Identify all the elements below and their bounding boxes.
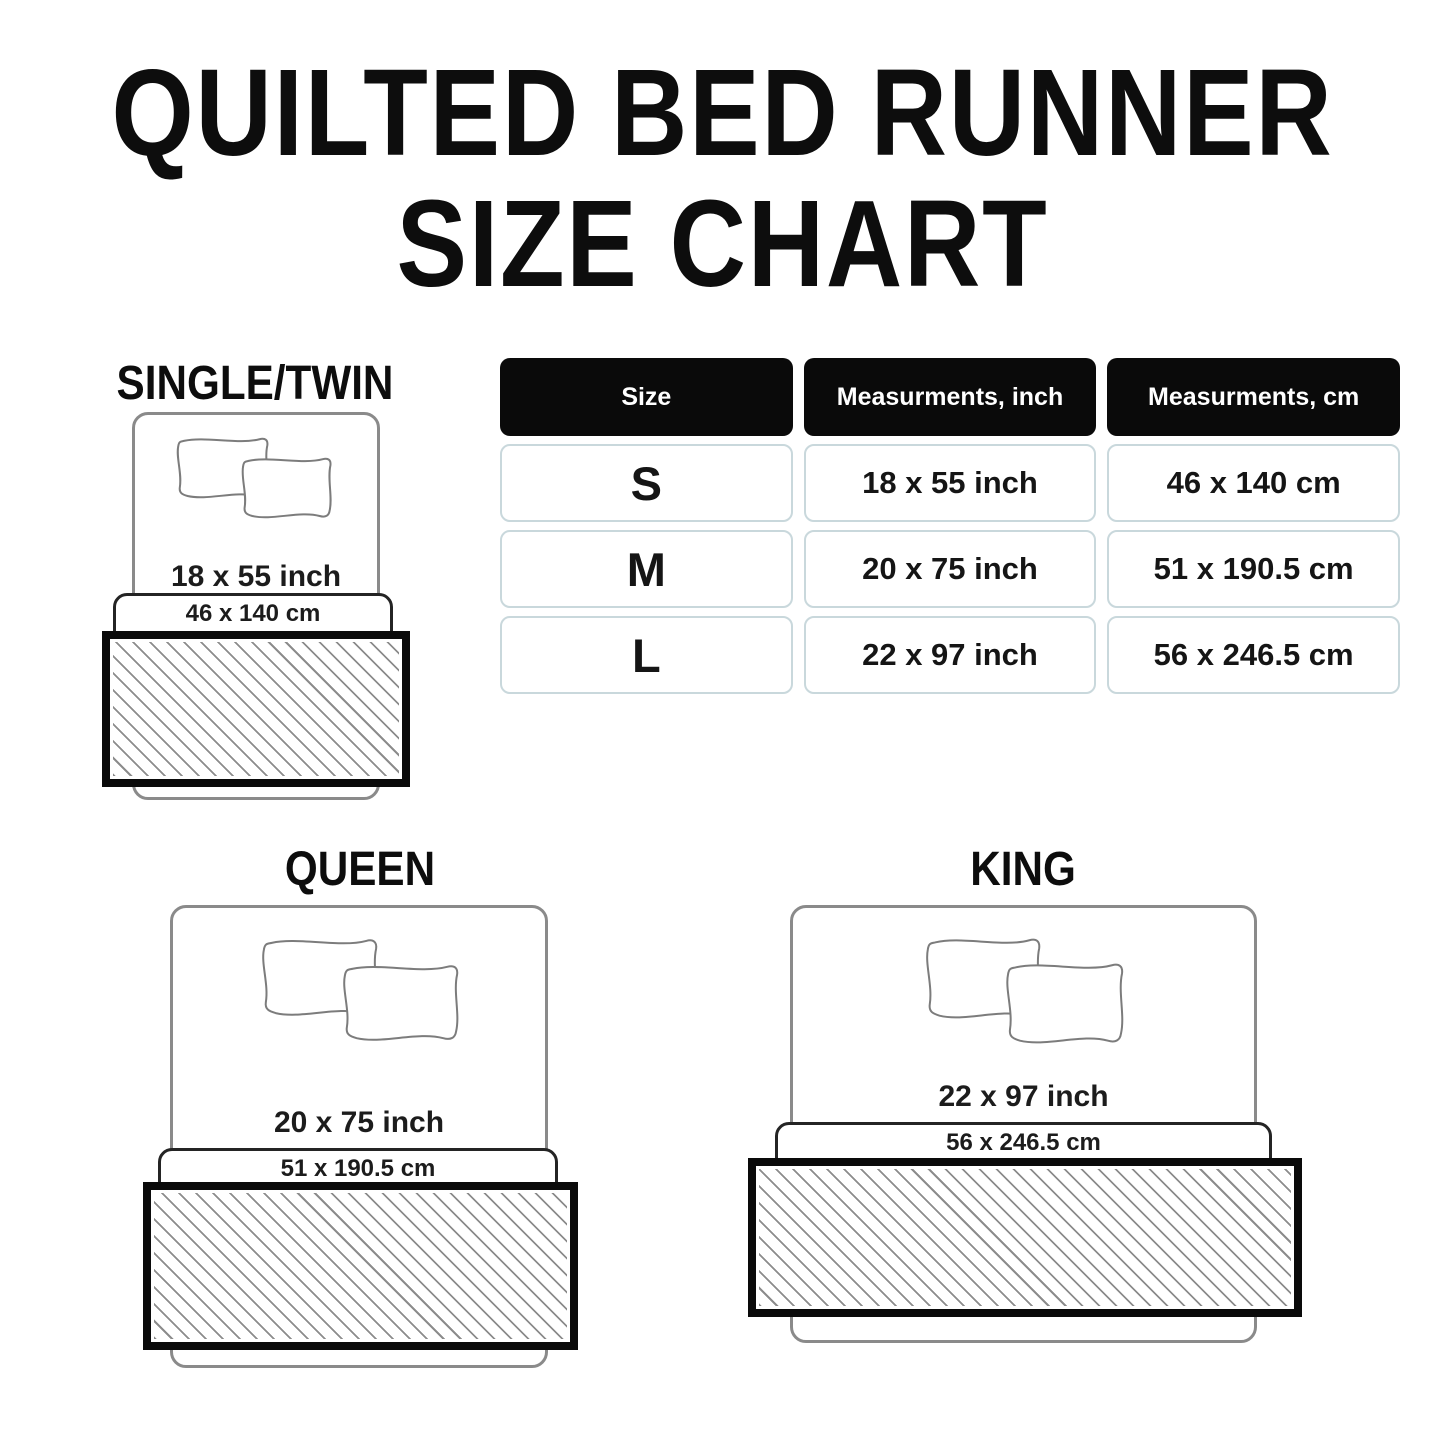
hatch-pattern [759,1169,1291,1306]
queen-inch-label: 20 x 75 inch [170,1106,548,1140]
pillow-icon [243,459,331,518]
king-cm-label: 56 x 246.5 cm [778,1125,1269,1157]
hatch-pattern [154,1193,567,1339]
table-cell-inch-l: 22 x 97 inch [804,616,1097,694]
table-cell-cm-l: 56 x 246.5 cm [1107,616,1400,694]
table-cell-cm-s: 46 x 140 cm [1107,444,1400,522]
queen-runner-swatch [143,1182,578,1350]
table-header-cm: Measurments, cm [1107,358,1400,436]
single-twin-pillows [165,426,345,526]
single-twin-inch-label: 18 x 55 inch [132,560,380,594]
table-cell-size-l: L [500,616,793,694]
size-chart-page: QUILTED BED RUNNER SIZE CHART Size Measu… [0,0,1445,1445]
single-twin-cm-label: 46 x 140 cm [116,596,390,628]
table-cell-inch-s: 18 x 55 inch [804,444,1097,522]
pillow-icon [344,966,457,1040]
size-table: Size Measurments, inch Measurments, cm S… [500,358,1400,694]
table-cell-size-s: S [500,444,793,522]
king-heading: KING [847,842,1199,897]
queen-cm-label: 51 x 190.5 cm [161,1151,555,1183]
king-inch-label: 22 x 97 inch [790,1080,1257,1114]
table-cell-inch-m: 20 x 75 inch [804,530,1097,608]
page-title-line1: QUILTED BED RUNNER [101,48,1344,179]
table-header-size: Size [500,358,793,436]
page-title-line2: SIZE CHART [101,179,1344,310]
pillow-icon [1007,965,1122,1043]
hatch-pattern [113,642,399,776]
table-cell-cm-m: 51 x 190.5 cm [1107,530,1400,608]
king-runner-swatch [748,1158,1302,1317]
single-twin-heading: SINGLE/TWIN [105,356,404,411]
queen-heading: QUEEN [184,842,536,897]
page-title: QUILTED BED RUNNER SIZE CHART [0,48,1445,310]
queen-pillows [250,926,470,1056]
king-pillows [915,928,1135,1056]
table-header-inch: Measurments, inch [804,358,1097,436]
table-cell-size-m: M [500,530,793,608]
single-twin-runner-swatch [102,631,410,787]
